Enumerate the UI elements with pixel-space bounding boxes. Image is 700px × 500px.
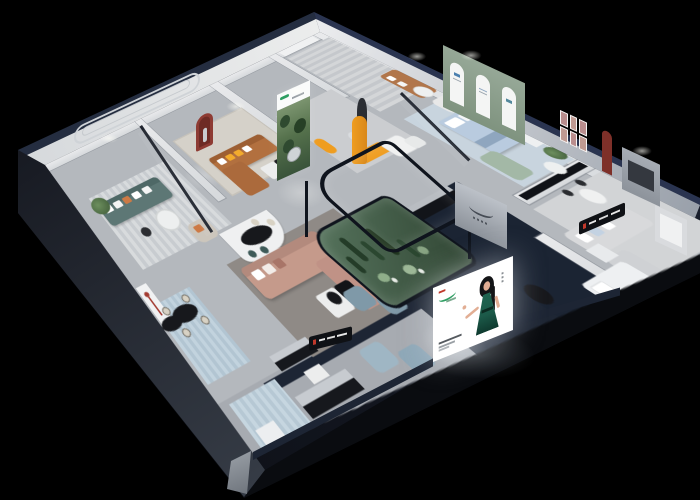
sign-text-dash	[337, 333, 347, 338]
sign-text-dash	[611, 209, 620, 215]
pillow	[112, 200, 124, 209]
sign-text-dash	[319, 338, 325, 342]
spotlight-glow	[628, 144, 656, 158]
pillow	[131, 191, 143, 200]
white-flowers	[390, 277, 399, 283]
pillow	[396, 81, 408, 87]
arched-panel	[450, 60, 464, 107]
cactus	[338, 237, 370, 262]
spotlight-glow	[456, 48, 486, 63]
picture-frame	[579, 119, 587, 137]
woman-arm-hip	[494, 295, 500, 308]
showroom-render	[0, 0, 700, 500]
sign-text-dash	[327, 336, 335, 340]
pillow-yellow	[233, 149, 245, 157]
spotlight-glow	[222, 99, 250, 114]
tv-screen	[628, 160, 654, 192]
picture-frame	[570, 130, 578, 148]
panel-logo-blue	[454, 72, 460, 78]
spotlight-glow	[96, 132, 122, 145]
sign-red-mark	[583, 223, 586, 229]
picture-frame	[560, 126, 568, 144]
sign-text-dash	[589, 220, 596, 225]
poster-vertical-text	[502, 272, 504, 285]
atrium-glass-post	[305, 181, 308, 237]
tree-blob	[280, 113, 290, 129]
tree-blob	[294, 116, 306, 135]
woman-hand	[463, 305, 467, 311]
spotlight-glow	[284, 84, 310, 98]
pillow-yellow	[225, 153, 237, 161]
panel-inner	[660, 213, 682, 247]
white-flowers	[417, 268, 426, 274]
sign-text-dash	[599, 215, 608, 221]
arch-shape	[602, 129, 612, 176]
spotlight-glow	[404, 50, 430, 63]
picture-frame	[579, 135, 587, 153]
woman-arm-extended	[465, 306, 479, 319]
pillow	[216, 158, 227, 166]
figurine	[203, 127, 207, 143]
pillow	[141, 185, 153, 194]
pillow	[386, 76, 398, 82]
arch-shape	[196, 110, 213, 152]
sign-red-mark	[313, 339, 316, 345]
pillow	[121, 196, 132, 205]
arched-panel	[502, 84, 516, 131]
picture-frame	[560, 110, 568, 128]
red-arch-niche-right	[600, 124, 614, 181]
picture-frame	[570, 114, 578, 132]
mural-forest-art	[277, 96, 310, 181]
panel-text-dash	[453, 78, 461, 83]
panel-logo-blue	[506, 98, 512, 104]
arched-panel	[476, 72, 490, 119]
